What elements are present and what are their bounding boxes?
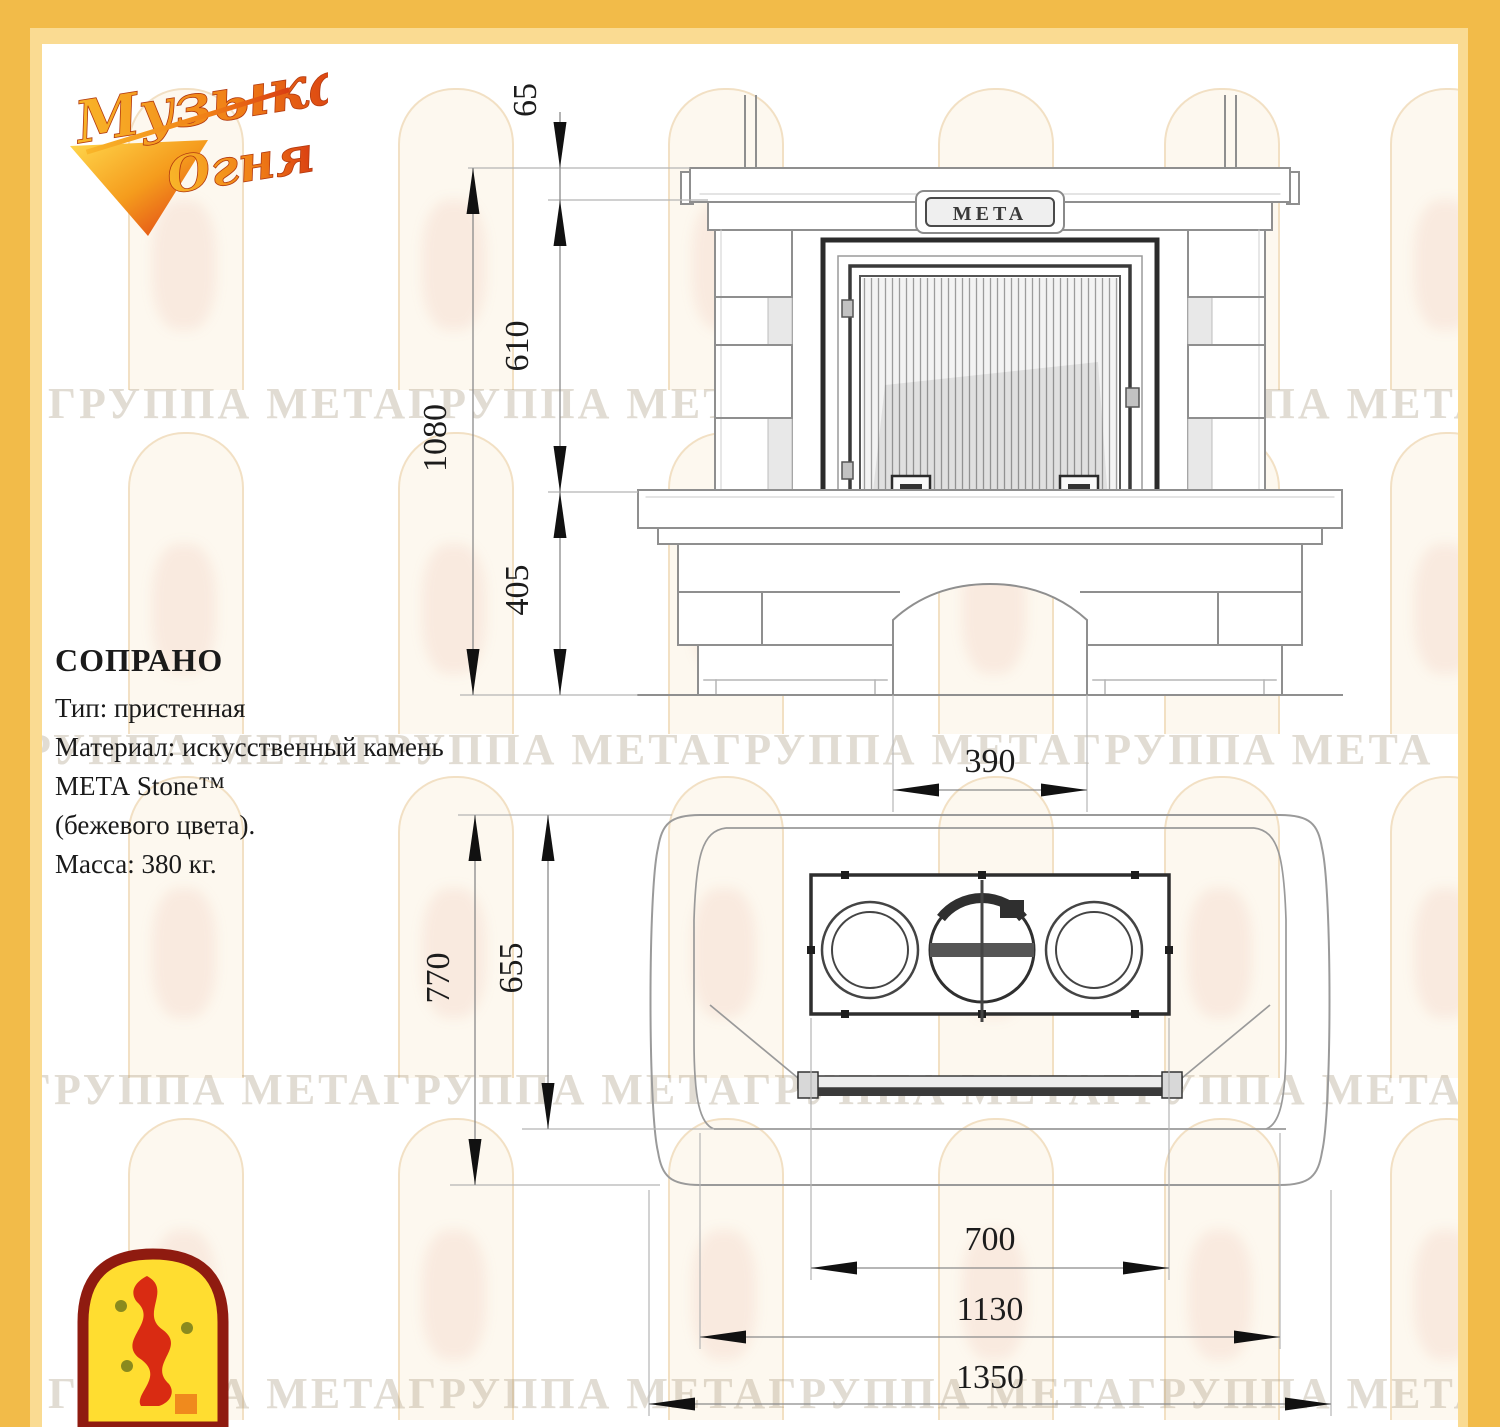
dim-label-655: 655 <box>493 943 530 994</box>
dim-label-405: 405 <box>499 565 536 616</box>
dim-label-1350: 1350 <box>956 1359 1024 1396</box>
dim-label-770: 770 <box>420 953 457 1004</box>
product-material-brand: МЕТА Stone™ <box>55 767 695 806</box>
flame-figure-emblem <box>75 1244 231 1427</box>
hinge-icon <box>842 462 853 479</box>
dim-label-1130: 1130 <box>957 1291 1024 1328</box>
top-view <box>651 815 1330 1185</box>
page-border-left-inner <box>30 44 42 1427</box>
latch-icon <box>1126 388 1139 407</box>
product-weight: Масса: 380 кг. <box>55 845 695 884</box>
product-type: Тип: пристенная <box>55 689 695 728</box>
page-border-top <box>0 0 1500 28</box>
product-info: СОПРАНО Тип: пристенная Материал: искусс… <box>55 642 695 884</box>
brand-plate: META <box>916 191 1064 233</box>
brand-plate-label: META <box>953 203 1028 225</box>
page-border-top-inner <box>0 28 1500 44</box>
product-material: Материал: искусственный камень <box>55 728 695 767</box>
front-panel-plan <box>710 1005 1270 1098</box>
dim-label-65: 65 <box>507 83 544 117</box>
page-border-right <box>1468 28 1500 1427</box>
chimney-pipes-icon <box>745 96 1236 168</box>
front-view: META <box>638 96 1342 695</box>
page-border-left <box>0 28 30 1427</box>
dim-label-700: 700 <box>965 1221 1016 1258</box>
dim-label-610: 610 <box>499 321 536 372</box>
music-of-fire-logo: Музыка Огня <box>48 48 328 248</box>
dim-label-390: 390 <box>965 743 1016 780</box>
dim-label-1080: 1080 <box>417 404 454 472</box>
product-title: СОПРАНО <box>55 642 695 679</box>
page-border-right-inner <box>1458 44 1468 1427</box>
page: ГРУППА МЕТАГРУППА МЕТАГРУППА МЕТАГРУППА … <box>0 0 1500 1427</box>
hinge-icon <box>842 300 853 317</box>
hearth-base <box>638 490 1342 695</box>
product-color: (бежевого цвета). <box>55 806 695 845</box>
firebox-plan <box>807 871 1173 1022</box>
